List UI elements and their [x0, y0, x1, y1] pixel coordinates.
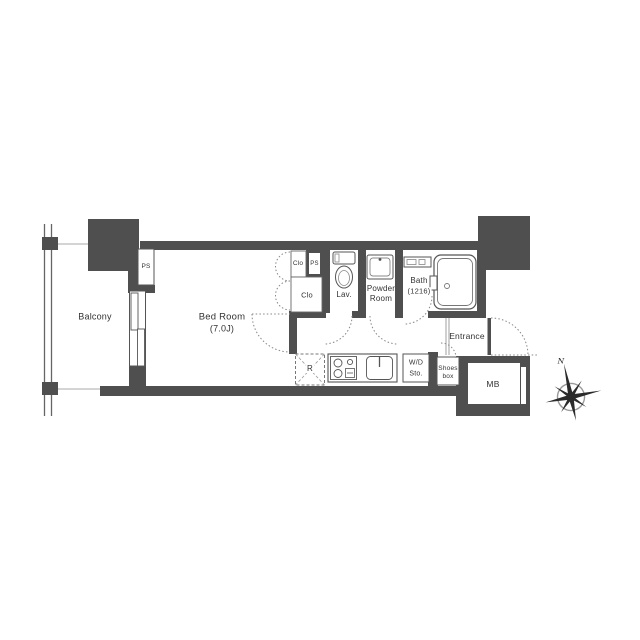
label-meter-box: MB	[486, 380, 499, 389]
label-shoes-box-1: Shoes	[438, 366, 457, 373]
wall-bedroom-east	[289, 312, 297, 354]
label-washer-dryer-1: W/D	[409, 360, 423, 367]
lavatory-door-arc	[324, 316, 352, 344]
wall-bath-right	[477, 250, 486, 318]
floor-plan-canvas: Balcony PS Bed Room (7.0J) Clo PS Clo La…	[0, 0, 640, 640]
bathtub	[434, 255, 476, 309]
bedroom-door-arc	[252, 314, 290, 352]
closet-bifold-arc-upper	[276, 252, 291, 281]
label-washer-dryer-2: Sto.	[409, 371, 422, 378]
balcony-window-sliding-door	[130, 291, 146, 366]
powder-room-door-arc	[370, 316, 398, 344]
label-shoes-box-2: box	[442, 374, 453, 381]
label-bath-size: (1216)	[407, 287, 432, 295]
label-pipe-space-balcony: PS	[141, 264, 150, 271]
label-lavatory: Lav.	[336, 291, 351, 299]
entrance-door-leaf	[488, 318, 492, 355]
wall-top	[140, 241, 480, 250]
shoes-box-door-arc	[441, 343, 456, 358]
label-balcony: Balcony	[78, 313, 111, 322]
label-bath: Bath	[409, 277, 428, 285]
label-compass-north: N	[558, 357, 565, 365]
label-entrance: Entrance	[449, 332, 485, 341]
closet-bifold-arc-lower	[276, 281, 291, 310]
pillar-top-left	[88, 219, 139, 271]
wall-bottom	[100, 386, 458, 396]
meter-box-door-slot	[521, 367, 526, 404]
label-refrigerator-space: R	[306, 365, 314, 373]
label-powder-room-2: Room	[370, 295, 392, 303]
powder-room-sink	[367, 255, 393, 279]
wall-powder-bath	[395, 249, 403, 313]
wall-lav-powder	[358, 249, 366, 313]
entrance-door-arc	[491, 318, 528, 355]
label-bedroom: Bed Room	[199, 312, 245, 322]
label-closet-upper: Clo	[293, 261, 303, 268]
label-powder-room-1: Powder	[367, 285, 395, 293]
label-closet-lower: Clo	[301, 291, 313, 299]
label-pipe-space-inner: PS	[310, 261, 318, 267]
label-bedroom-size: (7.0J)	[210, 325, 234, 334]
compass-rose-icon	[538, 357, 606, 426]
bath-door-arc	[404, 296, 432, 324]
washer-dryer-storage-box	[403, 354, 429, 382]
walls	[88, 216, 530, 416]
toilet-fixture	[333, 252, 355, 288]
kitchen-counter	[328, 354, 397, 382]
wall-closet-lav	[322, 249, 330, 313]
